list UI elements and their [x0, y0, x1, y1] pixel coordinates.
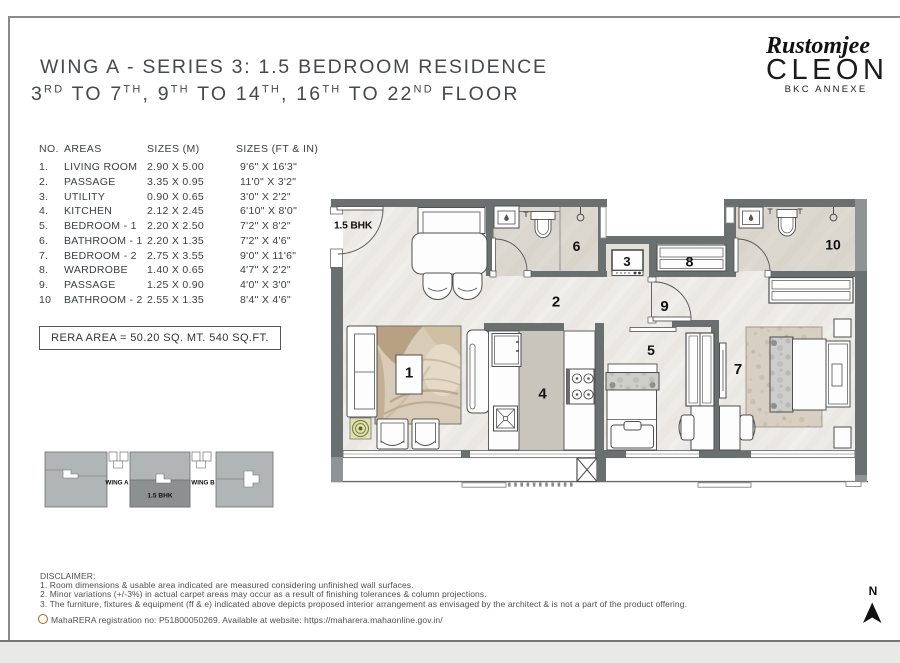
- svg-text:1.5 BHK: 1.5 BHK: [147, 493, 173, 500]
- svg-text:10: 10: [825, 237, 841, 253]
- svg-text:7: 7: [734, 361, 742, 378]
- svg-text:5: 5: [647, 342, 655, 358]
- svg-text:1: 1: [405, 365, 413, 382]
- svg-text:4: 4: [538, 386, 547, 403]
- svg-text:2: 2: [552, 294, 560, 311]
- svg-text:8: 8: [686, 254, 694, 270]
- svg-text:6: 6: [573, 238, 581, 254]
- svg-text:WING A: WING A: [105, 480, 129, 487]
- svg-text:9: 9: [660, 298, 668, 315]
- svg-text:WING B: WING B: [191, 480, 215, 487]
- svg-text:1.5 BHK: 1.5 BHK: [334, 221, 373, 232]
- svg-text:3: 3: [623, 254, 630, 269]
